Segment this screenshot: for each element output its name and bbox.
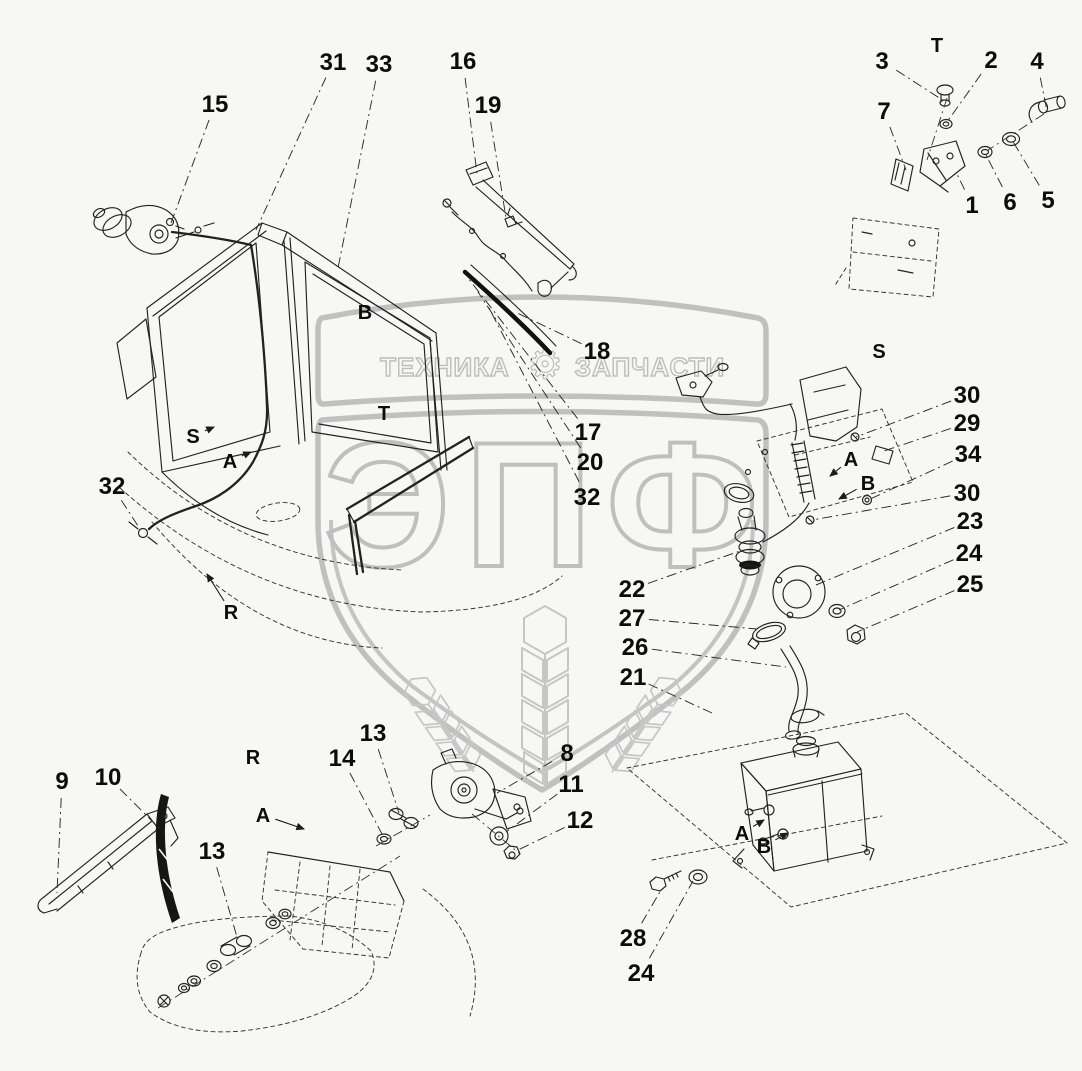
leader-11 [506,794,557,832]
callout-A: A [256,805,270,827]
leader-14 [350,773,382,834]
callout-31: 31 [320,49,347,76]
leader-24 [649,881,693,958]
callout-A: A [735,823,749,845]
leader-7 [890,127,906,170]
motor-nut [504,846,520,859]
callout-11: 11 [558,771,583,798]
callout-32: 32 [574,484,601,511]
leader-30 [856,401,951,437]
hose-clamp-lower [748,619,788,649]
callout-13: 13 [360,720,387,747]
callout-22: 22 [619,576,646,603]
nut-right [847,625,865,644]
motor-link [389,809,418,829]
exploded-parts-diagram: ТЕХНИКА ⚙ ЗАПЧАСТИ ЭПФ [0,0,1082,1071]
part-washer-2 [940,120,952,129]
callout-16: 16 [450,48,477,75]
leader-4 [1040,78,1047,111]
callout-B: B [861,473,875,495]
leader-2 [947,74,981,122]
leader-31 [256,78,326,231]
callout-14: 14 [329,745,356,772]
leader-33 [338,81,376,268]
callout-13: 13 [199,838,226,865]
leader-12 [516,827,565,851]
callout-25: 25 [957,571,984,598]
watermark-logo: ЭПФ [324,405,773,604]
callout-23: 23 [957,508,984,535]
callout-33: 33 [366,51,393,78]
callout-2: 2 [984,47,997,74]
wiper-blade-bottom [156,794,180,923]
callout-S: S [186,426,199,448]
callout-T: T [378,403,390,425]
leader-A [275,819,304,829]
leader-29 [884,428,951,451]
part-bracket-1 [920,141,965,192]
callout-30: 30 [954,382,981,409]
callout-4: 4 [1030,48,1044,75]
leader-5 [1012,140,1039,185]
panel-arc-dashed [423,889,475,1016]
mount-bolt [650,871,681,891]
callout-15: 15 [202,91,229,118]
leader-A [753,820,764,826]
part-washer-6 [978,147,992,158]
callout-21: 21 [620,664,647,691]
mount-washer [689,870,707,884]
leader-15 [171,120,209,223]
leader-R [207,574,224,601]
leader-S [205,427,214,431]
callout-5: 5 [1041,187,1054,214]
watermark-shield: ТЕХНИКА ⚙ ЗАПЧАСТИ ЭПФ [318,297,772,790]
leader-3 [896,70,944,101]
callout-12: 12 [567,807,594,834]
leader-9 [57,798,61,893]
leader-13 [378,749,399,813]
callout-30: 30 [954,480,981,507]
leader-32 [121,500,140,529]
callout-9: 9 [55,768,68,795]
callout-18: 18 [584,338,611,365]
callout-28: 28 [620,925,647,952]
leader-23 [816,528,954,586]
part-plate-7 [891,159,913,191]
mount-panel-dashed [627,713,1067,907]
callout-R: R [246,747,261,769]
callout-34: 34 [955,441,982,468]
callout-A: A [223,451,237,473]
leader-25 [857,591,954,632]
leader-B [839,489,857,499]
watermark-brand-left: ТЕХНИКА [380,352,510,382]
callout-B: B [757,836,771,858]
callout-S: S [872,341,885,363]
cowl-outline-dashed [137,916,374,1032]
top-right-parts [834,85,1066,297]
callout-A: A [844,449,858,471]
flange-plate [773,566,825,618]
callout-6: 6 [1003,189,1016,216]
leader-13 [217,867,237,937]
reservoir-hose [781,646,824,740]
callout-7: 7 [877,98,890,125]
washer-hose-left [129,232,267,544]
callout-26: 26 [622,634,649,661]
callout-32: 32 [99,473,126,500]
leader-30 [812,496,950,520]
fastener-chain [158,856,400,1008]
leader-1 [956,172,965,190]
callout-B: B [358,302,372,324]
callout-17: 17 [575,419,602,446]
cowl-panel-center [262,852,404,958]
exploded-parts-diagram-page: ТЕХНИКА ⚙ ЗАПЧАСТИ ЭПФ [0,0,1082,1071]
wiper-blade-top [465,265,568,353]
callout-1: 1 [965,192,978,219]
washer-reservoir [733,737,874,872]
leader-28 [642,890,661,923]
callout-19: 19 [475,92,502,119]
callout-8: 8 [560,740,573,767]
callout-27: 27 [619,605,646,632]
wiper-motor-top [90,203,214,254]
small-washer-right [829,605,845,618]
leader-6 [985,153,1002,187]
leader-A [830,467,841,476]
part-elbow-4 [1029,95,1066,122]
leader-19 [491,122,506,218]
callout-24: 24 [628,960,655,987]
callout-24: 24 [956,540,983,567]
callout-20: 20 [577,449,604,476]
callout-3: 3 [875,48,888,75]
leader-34 [868,461,953,500]
leader-24 [839,560,953,610]
callout-R: R [224,602,239,624]
callout-10: 10 [95,764,122,791]
callout-T: T [931,35,943,57]
callout-29: 29 [954,410,981,437]
